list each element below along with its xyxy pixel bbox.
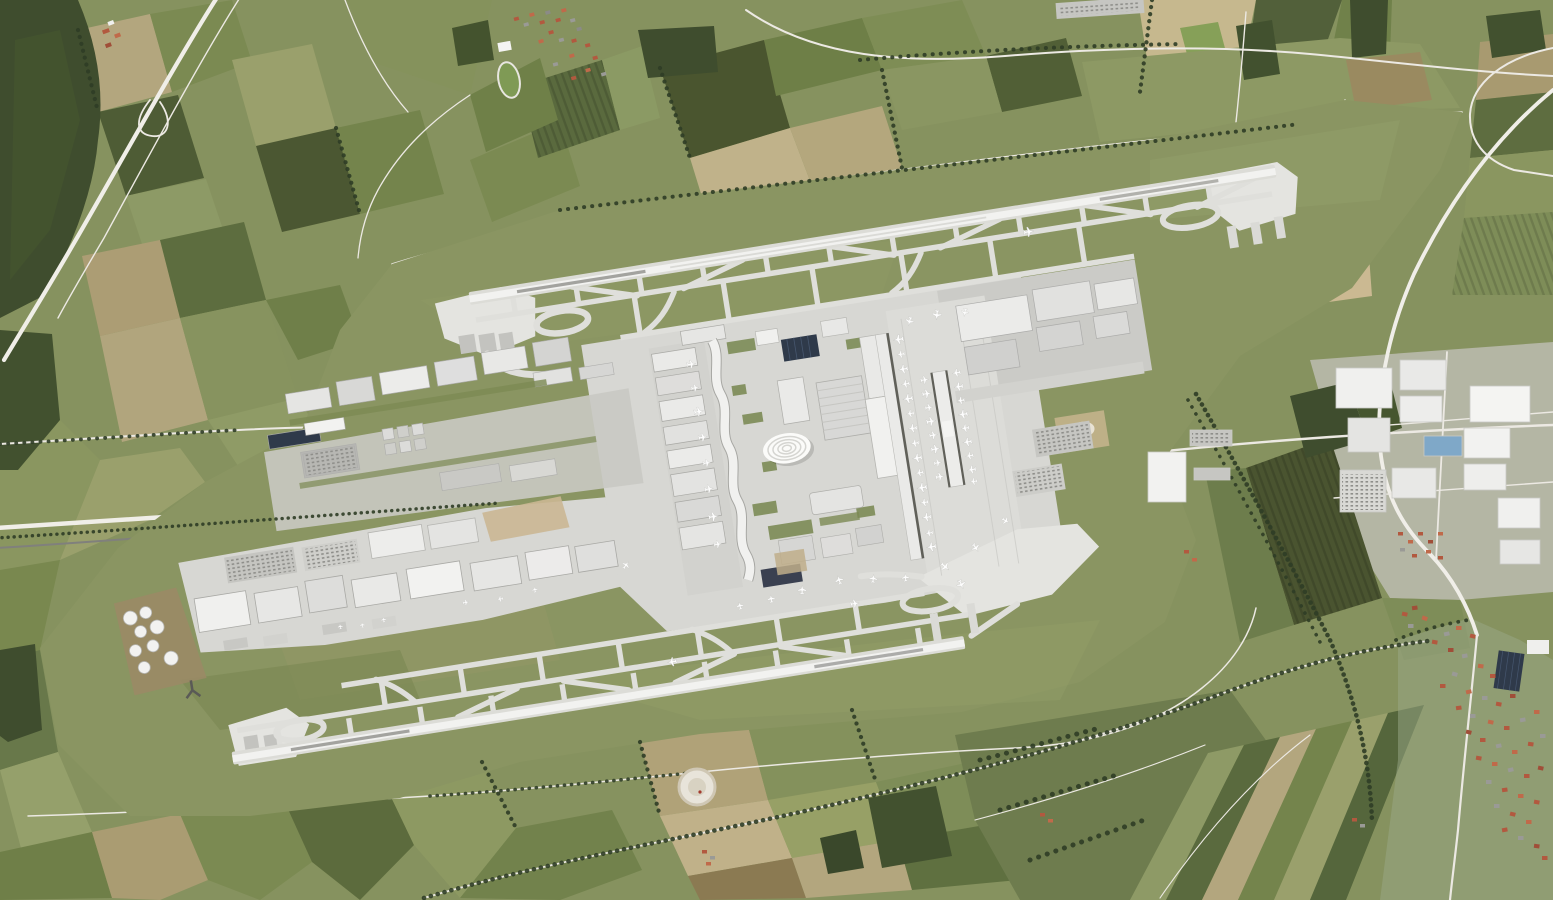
construction-dirt [774, 549, 807, 575]
satellite-image-viewport: Orthophoto: Munich-style international a… [0, 0, 1553, 900]
gravel-pit [679, 769, 715, 805]
aerial-photo-airport: Satellite aerial photograph of a large i… [0, 0, 1553, 900]
blue-roof-building [1424, 436, 1462, 456]
